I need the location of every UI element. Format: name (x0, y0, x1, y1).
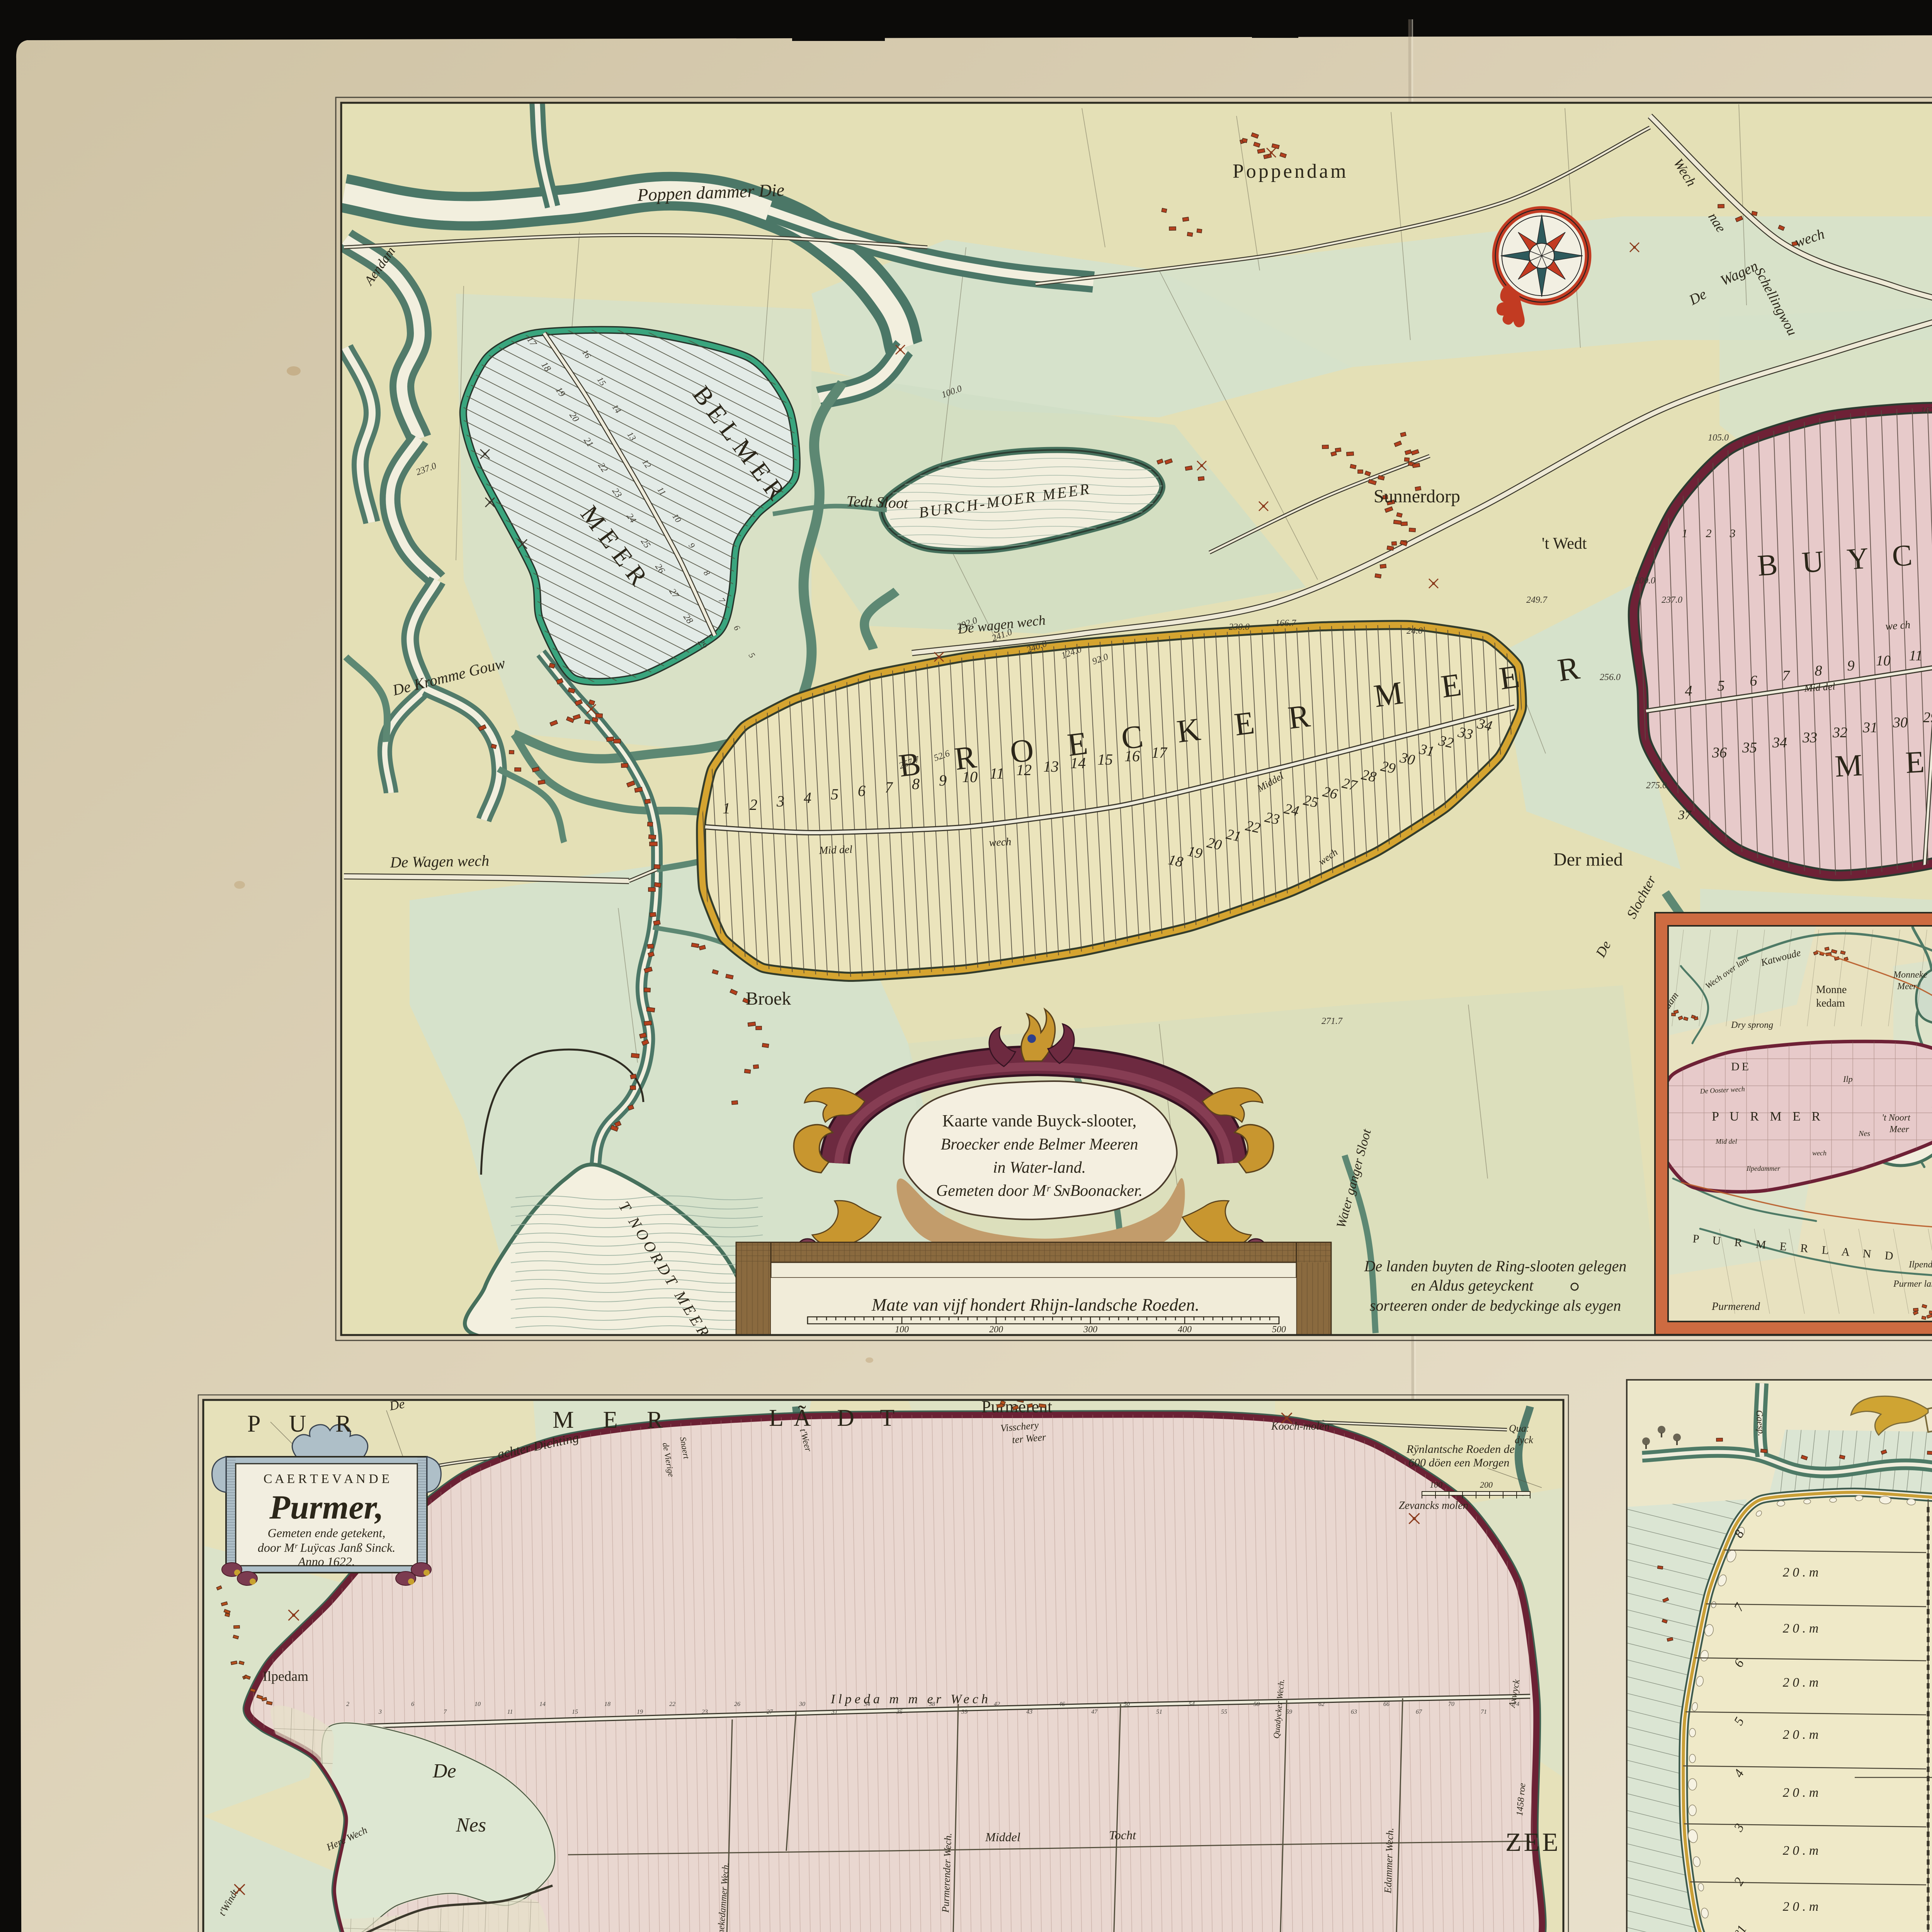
svg-text:2 0 . m: 2 0 . m (1783, 1844, 1819, 1858)
svg-text:2: 2 (1706, 527, 1712, 540)
svg-text:Mid del: Mid del (818, 844, 853, 857)
svg-text:Broecker ende Belmer Meeren: Broecker ende Belmer Meeren (940, 1136, 1138, 1153)
svg-text:24.0: 24.0 (1406, 626, 1423, 636)
svg-text:Gemeten door Mʳ SɴBoonacker.: Gemeten door Mʳ SɴBoonacker. (936, 1182, 1143, 1200)
svg-text:30: 30 (799, 1701, 805, 1708)
svg-text:7: 7 (444, 1709, 447, 1715)
svg-text:26: 26 (734, 1701, 740, 1708)
svg-text:58: 58 (1253, 1701, 1260, 1708)
svg-text:54: 54 (1189, 1701, 1195, 1708)
svg-text:we ch: we ch (1885, 619, 1911, 633)
svg-text:22: 22 (669, 1701, 675, 1708)
svg-text:P U R: P U R (247, 1411, 363, 1437)
svg-text:2 0 . m: 2 0 . m (1783, 1621, 1819, 1636)
svg-text:Gemeten ende getekent,: Gemeten ende getekent, (268, 1526, 386, 1540)
svg-text:3: 3 (776, 793, 784, 810)
svg-text:18: 18 (604, 1701, 611, 1708)
svg-text:Zevancks molen: Zevancks molen (1399, 1500, 1468, 1512)
svg-text:256.0: 256.0 (1600, 672, 1621, 682)
svg-text:33: 33 (1802, 730, 1817, 746)
svg-text:LÃ D T: LÃ D T (769, 1405, 905, 1431)
svg-text:Mid del: Mid del (1715, 1138, 1737, 1145)
svg-text:200: 200 (989, 1325, 1003, 1335)
svg-text:275.0: 275.0 (1646, 781, 1667, 791)
svg-text:6: 6 (858, 782, 866, 799)
svg-text:29: 29 (1923, 709, 1932, 726)
svg-text:8: 8 (1815, 663, 1822, 679)
svg-text:De landen buyten de Ring-sloot: De landen buyten de Ring-slooten gelegen (1364, 1257, 1627, 1275)
svg-text:door Mʳ Luÿcas Janß Sinck.: door Mʳ Luÿcas Janß Sinck. (258, 1541, 395, 1554)
svg-text:237.0: 237.0 (1662, 595, 1682, 605)
svg-text:19: 19 (637, 1709, 643, 1715)
svg-text:en Aldus geteyckent: en Aldus geteyckent (1411, 1277, 1534, 1294)
svg-text:Purmer,: Purmer, (269, 1489, 384, 1526)
svg-text:167.7: 167.7 (1920, 406, 1932, 416)
svg-text:Der mied: Der mied (1553, 849, 1623, 870)
svg-text:2 0 . m: 2 0 . m (1783, 1900, 1819, 1914)
svg-text:Ilpendam: Ilpendam (1908, 1260, 1932, 1270)
svg-text:70: 70 (1448, 1701, 1454, 1708)
svg-text:32: 32 (1832, 724, 1847, 741)
svg-text:37: 37 (1678, 808, 1692, 822)
svg-text:30: 30 (1893, 714, 1908, 731)
svg-text:Dry sprong: Dry sprong (1731, 1020, 1773, 1030)
svg-text:600 döen een Morgen: 600 döen een Morgen (1408, 1456, 1509, 1469)
svg-text:1: 1 (1682, 527, 1688, 540)
svg-text:35: 35 (896, 1709, 903, 1715)
svg-text:230.0: 230.0 (1229, 622, 1250, 632)
svg-text:300: 300 (1083, 1325, 1097, 1335)
svg-text:34: 34 (1772, 735, 1787, 751)
svg-text:500: 500 (1272, 1325, 1286, 1335)
svg-text:Purmerend: Purmerend (1711, 1301, 1760, 1313)
svg-text:200.0: 200.0 (1634, 576, 1655, 586)
svg-text:Monneke: Monneke (1893, 970, 1927, 980)
svg-text:M E R: M E R (553, 1407, 674, 1433)
svg-text:Nes: Nes (456, 1814, 486, 1836)
svg-text:9: 9 (1847, 658, 1855, 674)
svg-text:62: 62 (1318, 1701, 1325, 1708)
svg-text:Kaarte vande Buyck-slooter,: Kaarte vande Buyck-slooter, (942, 1111, 1137, 1130)
svg-text:kedam: kedam (1816, 997, 1845, 1009)
svg-text:Monne: Monne (1816, 984, 1847, 996)
svg-text:Anno 1622.: Anno 1622. (297, 1554, 355, 1568)
svg-text:2 0 . m: 2 0 . m (1783, 1565, 1819, 1580)
svg-text:wech: wech (989, 836, 1012, 849)
svg-text:39: 39 (961, 1709, 968, 1715)
svg-text:71: 71 (1481, 1709, 1487, 1715)
svg-text:55: 55 (1221, 1709, 1227, 1715)
svg-text:2 0 . m: 2 0 . m (1783, 1675, 1819, 1690)
svg-text:Broek: Broek (746, 988, 791, 1009)
svg-text:2 0 . m: 2 0 . m (1783, 1786, 1819, 1800)
svg-text:249.7: 249.7 (1526, 595, 1548, 605)
svg-text:Nes: Nes (1858, 1129, 1870, 1138)
svg-text:11: 11 (507, 1709, 513, 1715)
svg-text:31: 31 (831, 1709, 838, 1715)
svg-text:Purmer land: Purmer land (1893, 1279, 1932, 1289)
svg-text:10: 10 (1876, 653, 1891, 669)
svg-text:C A E R T E V A N D E: C A E R T E V A N D E (264, 1472, 389, 1486)
svg-text:42: 42 (994, 1701, 1000, 1708)
svg-text:Kooch-molen: Kooch-molen (1271, 1420, 1330, 1432)
svg-text:Quaː: Quaː (1509, 1423, 1529, 1434)
svg-text:50: 50 (1124, 1701, 1130, 1708)
svg-text:Mate van vijf hondert Rhijn: Mate van vijf hondert Rhijn-landsche Roe… (871, 1295, 1199, 1315)
svg-text:2: 2 (750, 796, 757, 813)
svg-text:7: 7 (885, 779, 893, 796)
svg-text:43: 43 (1026, 1709, 1032, 1715)
svg-text:Meer: Meer (1897, 981, 1917, 992)
svg-text:63: 63 (1351, 1709, 1357, 1715)
svg-text:Poppendam: Poppendam (1233, 160, 1349, 182)
svg-text:DE: DE (1731, 1060, 1751, 1073)
svg-text:Ilpedammer: Ilpedammer (1746, 1165, 1781, 1172)
svg-text:Tocht: Tocht (1109, 1828, 1136, 1842)
svg-text:in Water-land.: in Water-land. (993, 1159, 1086, 1177)
svg-text:1: 1 (723, 799, 730, 817)
svg-text:Ilpeda m m er Wech: Ilpeda m m er Wech (830, 1692, 991, 1706)
svg-text:27: 27 (767, 1709, 773, 1715)
svg-text:2 0 . m: 2 0 . m (1783, 1728, 1819, 1742)
svg-text:3: 3 (1730, 527, 1736, 540)
svg-text:5: 5 (1718, 678, 1725, 694)
svg-text:46: 46 (1059, 1701, 1065, 1708)
svg-text:10: 10 (474, 1701, 481, 1708)
svg-text:Ilpedam: Ilpedam (263, 1668, 308, 1684)
svg-text:5: 5 (831, 786, 838, 803)
svg-text:51: 51 (1156, 1709, 1162, 1715)
svg-text:ZEE: ZEE (1505, 1827, 1561, 1857)
svg-text:Ilp: Ilp (1843, 1074, 1852, 1084)
svg-text:23: 23 (702, 1709, 708, 1715)
svg-text:15: 15 (572, 1709, 578, 1715)
svg-text:271.7: 271.7 (1321, 1016, 1343, 1026)
svg-text:'t Noort: 't Noort (1882, 1113, 1911, 1123)
svg-text:47: 47 (1091, 1709, 1098, 1715)
svg-text:100: 100 (895, 1325, 909, 1335)
svg-text:3: 3 (378, 1709, 382, 1715)
svg-text:Sunnerdorp: Sunnerdorp (1374, 486, 1460, 507)
svg-text:Middel: Middel (985, 1830, 1020, 1844)
svg-text:De: De (432, 1760, 456, 1782)
svg-text:7: 7 (1782, 668, 1791, 684)
svg-text:67: 67 (1416, 1709, 1422, 1715)
svg-text:100: 100 (1430, 1480, 1442, 1490)
svg-text:2: 2 (346, 1701, 349, 1708)
svg-text:De Wagen wech: De Wagen wech (389, 852, 489, 871)
svg-text:166.7: 166.7 (1275, 618, 1296, 628)
svg-text:31: 31 (1862, 719, 1878, 736)
svg-text:wech: wech (1812, 1149, 1827, 1157)
svg-text:Tedt Sloot: Tedt Sloot (846, 492, 909, 512)
svg-text:dyck: dyck (1515, 1434, 1533, 1446)
svg-text:4: 4 (1685, 683, 1692, 699)
svg-text:66: 66 (1383, 1701, 1389, 1708)
svg-text:36: 36 (1712, 745, 1727, 761)
svg-text:Rÿnlantsche Roeden de: Rÿnlantsche Roeden de (1406, 1443, 1515, 1456)
svg-text:200: 200 (1480, 1480, 1493, 1490)
svg-text:P U R M E R: P U R M E R (1712, 1109, 1824, 1124)
svg-text:14: 14 (539, 1701, 546, 1708)
svg-text:6: 6 (411, 1701, 414, 1708)
svg-text:35: 35 (1742, 740, 1757, 756)
svg-text:400: 400 (1178, 1325, 1192, 1335)
svg-text:11: 11 (1909, 648, 1922, 664)
svg-text:Mid del: Mid del (1803, 680, 1835, 694)
svg-text:6: 6 (1750, 673, 1757, 689)
svg-text:sorteeren onder de bedyckinge: sorteeren onder de bedyckinge als eygen (1370, 1297, 1621, 1314)
svg-text:59: 59 (1286, 1709, 1292, 1715)
svg-text:'t Wedt: 't Wedt (1542, 535, 1587, 553)
svg-text:105.0: 105.0 (1708, 433, 1729, 443)
svg-text:Meer: Meer (1889, 1124, 1909, 1134)
svg-text:Edammer Wech.: Edammer Wech. (1382, 1828, 1396, 1894)
svg-text:4: 4 (804, 789, 811, 806)
